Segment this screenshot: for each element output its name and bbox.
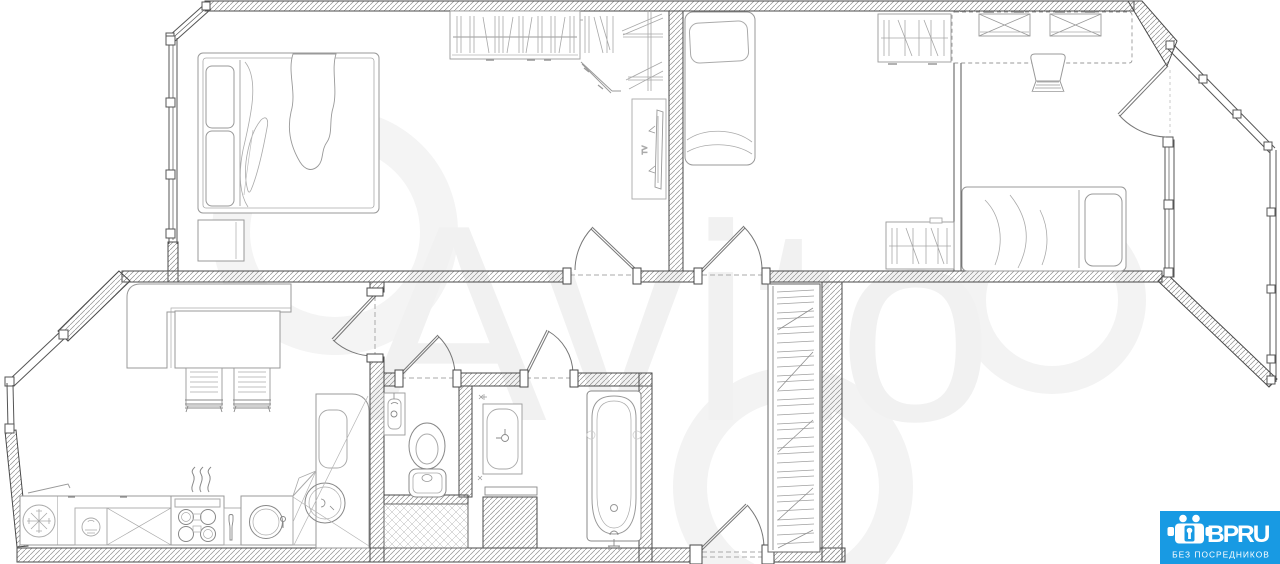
svg-text:BPRU: BPRU bbox=[1207, 521, 1270, 548]
svg-text:БЕЗ ПОСРЕДНИКОВ: БЕЗ ПОСРЕДНИКОВ bbox=[1172, 550, 1270, 560]
svg-text:TV: TV bbox=[642, 145, 649, 154]
